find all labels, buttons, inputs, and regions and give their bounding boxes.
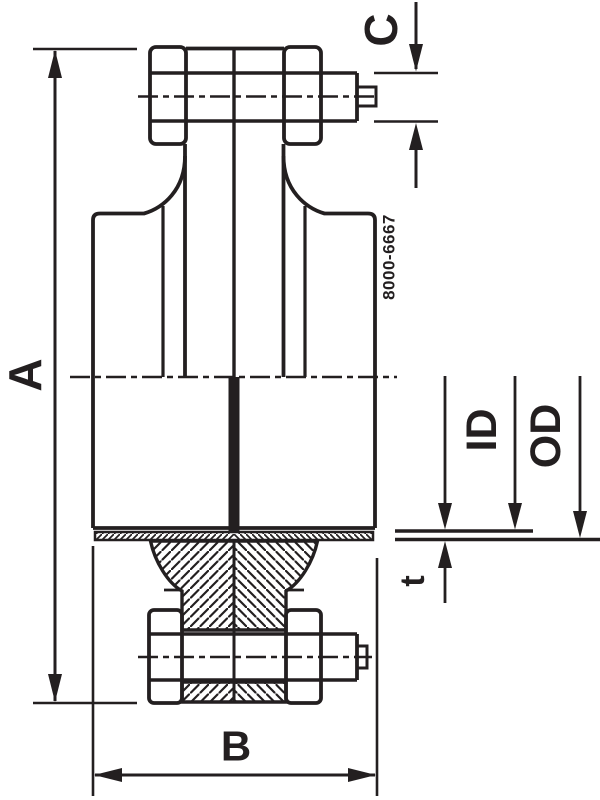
center-bore-bar (229, 377, 240, 532)
arrowhead-t-up (438, 541, 452, 568)
arrowhead-od (573, 511, 587, 538)
arrowhead-t-down (438, 503, 452, 530)
upper-bolt-assembly (138, 47, 378, 144)
arrowhead-c-down (409, 44, 423, 72)
label-b: B (221, 723, 251, 770)
label-id: ID (458, 409, 506, 452)
flange-section-drawing: A C ID OD t B 8000-6667 (0, 0, 600, 800)
label-a: A (0, 358, 51, 391)
dimension-c: C (355, 2, 438, 188)
arrowhead-c-up (409, 123, 423, 150)
hub-fillet-right (284, 156, 376, 528)
arrowhead-a-down (48, 674, 62, 702)
arrowhead-a-up (48, 50, 62, 78)
arrowhead-id (508, 503, 522, 530)
hub-fillet-left (93, 156, 185, 528)
label-od: OD (522, 404, 570, 469)
dimension-id-od-t: ID OD t (394, 376, 600, 603)
part-number-label: 8000-6667 (380, 214, 399, 300)
label-t: t (394, 575, 432, 586)
label-c: C (355, 13, 407, 46)
arrowhead-b-left (94, 768, 122, 782)
technical-drawing-page: A C ID OD t B 8000-6667 (0, 0, 600, 800)
arrowhead-b-right (348, 768, 376, 782)
